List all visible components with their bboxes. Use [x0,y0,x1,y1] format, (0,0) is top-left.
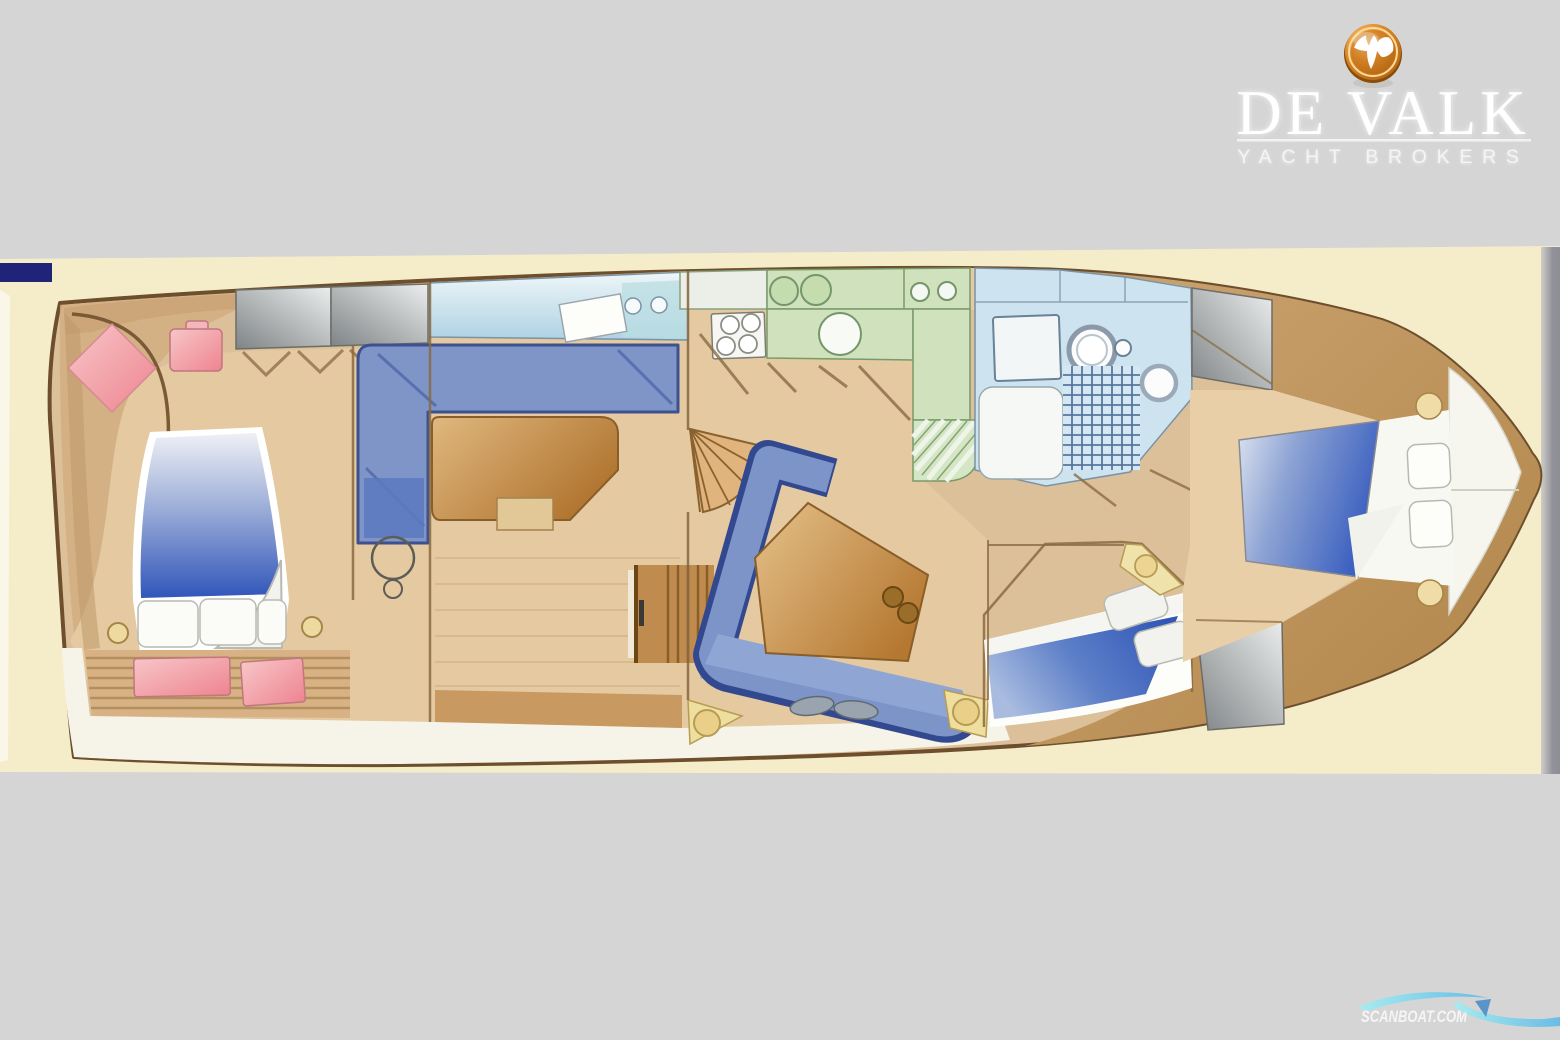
svg-text:YACHT BROKERS: YACHT BROKERS [1237,146,1528,168]
svg-text:SCANBOAT.COM: SCANBOAT.COM [1361,1007,1468,1026]
svg-text:DE VALK: DE VALK [1236,78,1529,148]
